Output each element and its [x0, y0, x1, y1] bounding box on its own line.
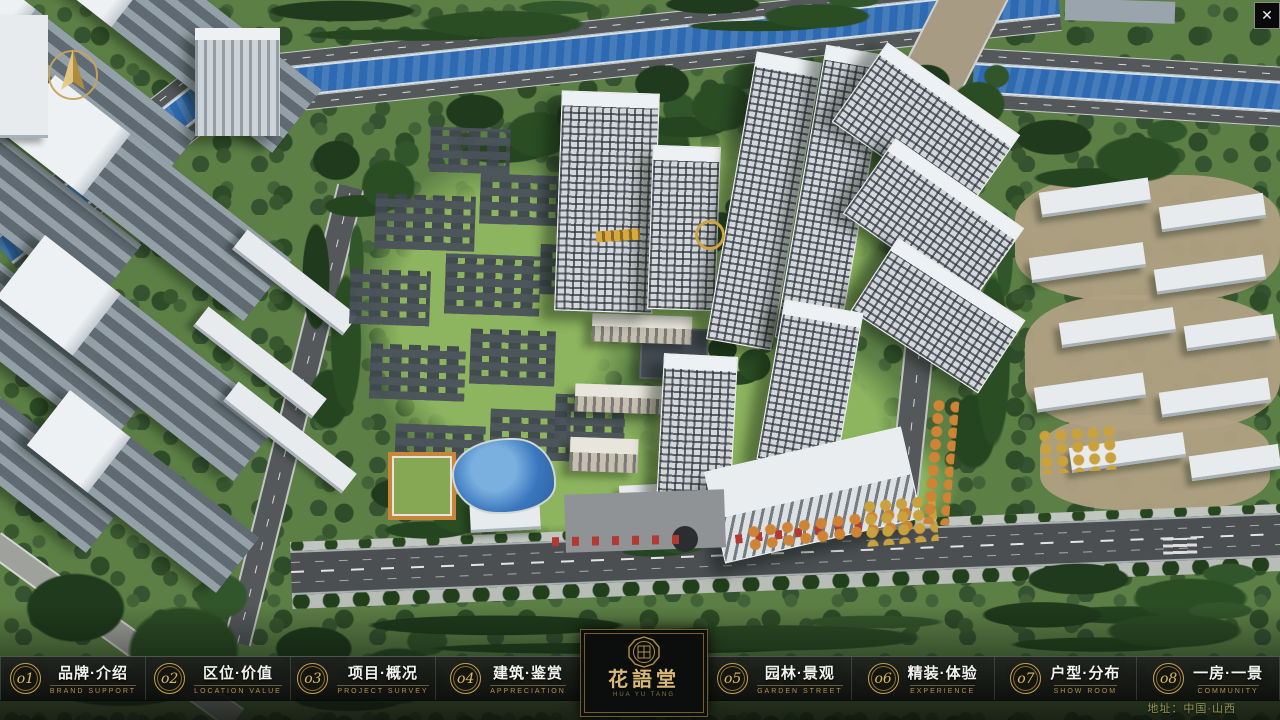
nav-label-en: BRAND SUPPORT [50, 685, 136, 695]
crosswalk [1163, 537, 1198, 554]
fountain-ring [695, 220, 725, 250]
compass-icon [44, 44, 102, 102]
nav-label-zh: 园林·景观 [765, 662, 835, 683]
courtyard-houses [429, 127, 511, 175]
nav-number-badge: o1 [10, 663, 41, 694]
nav-label-zh: 建筑·鉴赏 [493, 662, 563, 683]
nav-label: 一房·一景 COMMUNITY [1193, 662, 1263, 695]
close-button[interactable]: ✕ [1254, 2, 1280, 29]
nav-item-architecture[interactable]: o4 建筑·鉴赏 APPRECIATION [435, 657, 580, 700]
existing-tower [0, 15, 48, 138]
nav-label: 品牌·介绍 BRAND SUPPORT [50, 662, 136, 695]
nav-label-zh: 一房·一景 [1193, 662, 1263, 683]
nav-number-badge: o6 [868, 663, 899, 694]
tree-grove [640, 0, 900, 35]
courtyard-houses [349, 269, 431, 327]
brand-subtitle: HUA YU TANG [613, 692, 675, 698]
nav-label-zh: 区位·价值 [203, 662, 273, 683]
nav-label: 项目·概况 PROJECT SURVEY [337, 662, 428, 695]
existing-tower [195, 28, 280, 136]
nav-label-en: EXPERIENCE [910, 685, 975, 695]
nav-label-en: SHOW ROOM [1054, 685, 1118, 695]
nav-label: 户型·分布 SHOW ROOM [1050, 662, 1120, 695]
nav-label: 精装·体验 EXPERIENCE [908, 662, 978, 695]
midrise-flat [575, 383, 671, 414]
project-address: 地址：中国·山西 [1147, 700, 1236, 716]
nav-number-badge: o4 [450, 663, 481, 694]
nav-group-left: o1 品牌·介绍 BRAND SUPPORT o2 区位·价值 LOCATION… [0, 657, 580, 700]
tree-grove [995, 110, 1205, 195]
nav-group-right: o5 园林·景观 GARDEN STREET o6 精装·体验 EXPERIEN… [708, 657, 1280, 700]
orange-roof-villa [388, 452, 456, 520]
nav-number-badge: o8 [1153, 663, 1184, 694]
nav-label-zh: 精装·体验 [908, 662, 978, 683]
nav-item-floorplan[interactable]: o7 户型·分布 SHOW ROOM [994, 657, 1137, 700]
nav-label: 建筑·鉴赏 APPRECIATION [490, 662, 566, 695]
nav-number-badge: o2 [154, 663, 185, 694]
courtyard-houses [444, 253, 541, 316]
nav-item-location[interactable]: o2 区位·价值 LOCATION VALUE [145, 657, 290, 700]
nav-label-zh: 户型·分布 [1050, 662, 1120, 683]
nav-label-en: LOCATION VALUE [194, 685, 282, 695]
highrise-tower [554, 90, 660, 313]
courtyard-houses [369, 343, 466, 401]
nav-label-zh: 项目·概况 [348, 662, 418, 683]
nav-number-badge: o3 [297, 663, 328, 694]
nav-item-interior[interactable]: o6 精装·体验 EXPERIENCE [851, 657, 994, 700]
courtyard-houses [469, 329, 556, 387]
nav-label-zh: 品牌·介绍 [58, 662, 128, 683]
midrise-flat [569, 437, 638, 473]
midrise-flat [592, 313, 693, 344]
shrub-patch [1039, 425, 1120, 474]
building-roof [1065, 0, 1176, 24]
presentation-window: ✕ o1 品牌·介绍 BRAND SUPPORT o2 区位·价值 LOCATI… [0, 0, 1280, 720]
brand-seal-icon [628, 636, 660, 668]
nav-item-brand[interactable]: o1 品牌·介绍 BRAND SUPPORT [0, 657, 145, 700]
nav-label-en: GARDEN STREET [757, 685, 843, 695]
nav-label-en: APPRECIATION [490, 685, 566, 695]
tree-grove [230, 0, 630, 45]
nav-item-project[interactable]: o3 项目·概况 PROJECT SURVEY [290, 657, 435, 700]
brand-logo-panel: 花語堂 HUA YU TANG [580, 629, 708, 717]
nav-label-en: COMMUNITY [1198, 685, 1259, 695]
nav-item-garden[interactable]: o5 园林·景观 GARDEN STREET [708, 657, 851, 700]
brand-title: 花語堂 [608, 668, 680, 690]
landscape-pond [452, 438, 556, 514]
nav-item-views[interactable]: o8 一房·一景 COMMUNITY [1136, 657, 1280, 700]
nav-number-badge: o5 [717, 663, 748, 694]
nav-label-en: PROJECT SURVEY [337, 685, 428, 695]
nav-label: 园林·景观 GARDEN STREET [757, 662, 843, 695]
nav-label: 区位·价值 LOCATION VALUE [194, 662, 282, 695]
nav-number-badge: o7 [1010, 663, 1041, 694]
courtyard-houses [374, 193, 476, 251]
